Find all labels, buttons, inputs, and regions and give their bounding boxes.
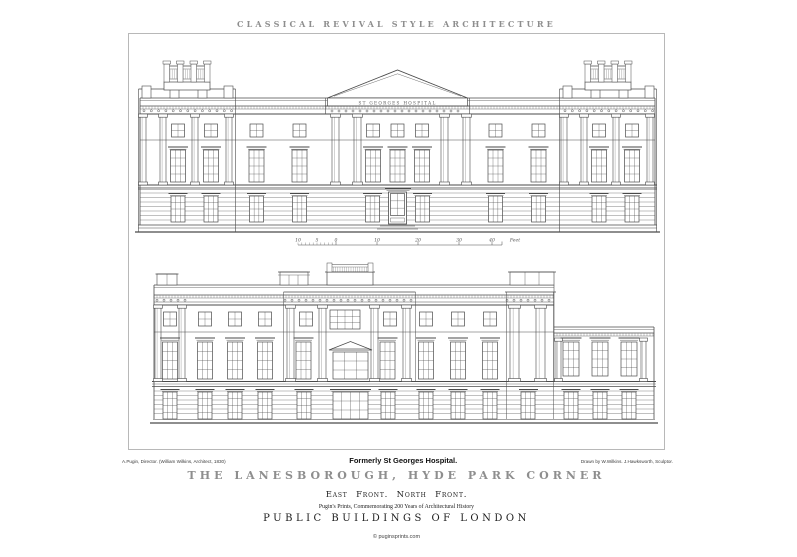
poster-canvas: CLASSICAL REVIVAL STYLE ARCHITECTURE ST … [0,0,797,557]
series-note: Pugin's Prints, Commemorating 200 Years … [128,504,665,510]
caption-row: A.Pugin, Director. (William Wilkins, Arc… [122,456,673,465]
north-front-elevation-drawing [130,262,665,434]
fronts-caption: East Front. North Front. [128,490,665,500]
scale-bar-label: 10 [295,238,301,244]
scale-bar-label: 10 [374,238,380,244]
credit-left: A.Pugin, Director. (William Wilkins, Arc… [122,456,226,464]
caption-former-name: Formerly St Georges Hospital. [349,456,457,465]
poster-title: THE LANESBOROUGH, HYDE PARK CORNER [128,469,665,482]
scale-bar-label: 40 [488,238,495,244]
scale-bar-label: 30 [456,238,462,244]
scale-bar-label: 0 [335,238,338,244]
poster-header-title: CLASSICAL REVIVAL STYLE ARCHITECTURE [128,19,665,29]
scale-bar-label: 20 [414,238,421,244]
frieze-inscription: ST GEORGES HOSPITAL [358,101,436,106]
east-front-elevation-drawing: ST GEORGES HOSPITAL 10 5 0 10 20 30 40 F… [130,36,665,266]
scale-bar-unit: Feet [509,238,520,244]
credit-right: Drawn by W.Wilkins. J.Hawksworth, Sculpt… [581,456,673,464]
copyright-text: © puginsprints.com [128,534,665,540]
plate-frame: ST GEORGES HOSPITAL 10 5 0 10 20 30 40 F… [128,33,665,450]
scale-bar-label: 5 [316,238,319,244]
series-title: PUBLIC BUILDINGS OF LONDON [128,513,665,524]
